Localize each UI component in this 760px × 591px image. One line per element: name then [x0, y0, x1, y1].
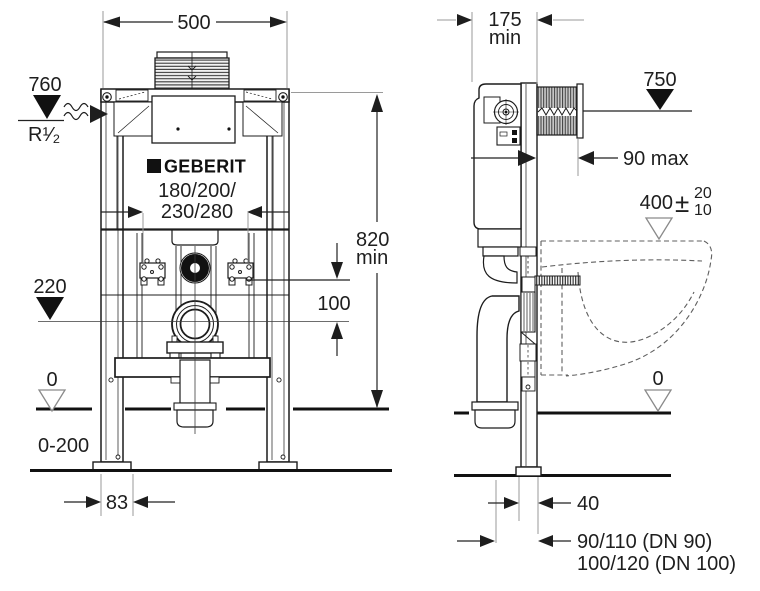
supply-height-value: 760: [28, 74, 61, 96]
flush-valve-latch: [497, 127, 520, 145]
level-marker-open: [645, 390, 671, 411]
wc-tolerance-minus: 10: [694, 202, 712, 219]
side-view: [454, 83, 712, 476]
wc-ghost-outline: [541, 241, 712, 376]
water-supply-wave-icon: [64, 104, 88, 120]
front-view: [30, 52, 392, 471]
dim-supply-height: 760 R¹⁄₂: [18, 74, 108, 146]
protrusion-value: 90 max: [623, 148, 689, 170]
installation-drawing-canvas: GEBERIT 180/200/ 230/280 500 760 R¹⁄₂ 82…: [0, 0, 760, 591]
wc-height-value: 400: [640, 192, 673, 214]
flush-pipe-side: [537, 84, 583, 138]
level-marker-filled: [33, 95, 61, 119]
wall-bracket-left: [140, 259, 165, 285]
model-heights-line1: 180/200/: [158, 180, 236, 202]
frame-height-unit: min: [356, 247, 388, 269]
dim-protrusion: 90 max: [578, 139, 689, 176]
front-floor-level-marker: 0: [39, 369, 65, 411]
front-floor-level-value: 0: [46, 369, 57, 391]
technical-drawing: GEBERIT 180/200/ 230/280 500 760 R¹⁄₂ 82…: [0, 0, 760, 591]
dim-wc-height: 400 ± 20 10: [640, 185, 712, 239]
dim-drain-size: 90/110 (DN 90) 100/120 (DN 100): [457, 531, 736, 575]
level-marker-filled: [36, 297, 64, 320]
flush-bend-side: [483, 256, 517, 283]
dim-outlet-drop: 100: [246, 243, 351, 356]
dim-flush-pipe-height: 750: [583, 69, 692, 111]
front-width-value: 500: [177, 12, 210, 34]
side-drain-elbow: [472, 296, 519, 428]
dim-frame-height: 820 min: [291, 93, 389, 409]
side-floor-level-value: 0: [652, 368, 663, 390]
leg-offset-value: 83: [106, 492, 128, 514]
flush-valve-housing: [114, 96, 282, 143]
geberit-logo-text: GEBERIT: [164, 157, 246, 177]
outlet-drop-value: 100: [317, 293, 350, 315]
wall-bracket-right: [228, 259, 253, 285]
supply-thread-value: R¹⁄₂: [28, 124, 60, 146]
geberit-logo: GEBERIT: [147, 157, 246, 177]
wc-tolerance-plus: 20: [694, 185, 712, 202]
wall-offset-value: 40: [577, 493, 599, 515]
level-marker-filled: [646, 89, 674, 110]
drain-size-line1: 90/110 (DN 90): [577, 531, 712, 553]
dim-depth: 175 min: [437, 9, 584, 84]
floor-buildup-value: 0-200: [38, 435, 89, 457]
side-cistern: [474, 84, 521, 283]
dim-leg-offset: 83: [64, 474, 175, 516]
dim-outlet-height: 220: [33, 276, 66, 320]
drain-size-line2: 100/120 (DN 100): [577, 553, 736, 575]
depth-unit: min: [489, 27, 521, 49]
wc-tolerance-sign: ±: [675, 188, 689, 218]
outlet-height-value: 220: [33, 276, 66, 298]
side-floor-level-marker: 0: [645, 368, 671, 411]
model-heights-line2: 230/280: [161, 201, 233, 223]
flush-pipe-height-value: 750: [643, 69, 676, 91]
geberit-logo-square: [147, 159, 161, 173]
fixing-rod: [535, 276, 580, 285]
level-marker-open: [646, 218, 672, 239]
